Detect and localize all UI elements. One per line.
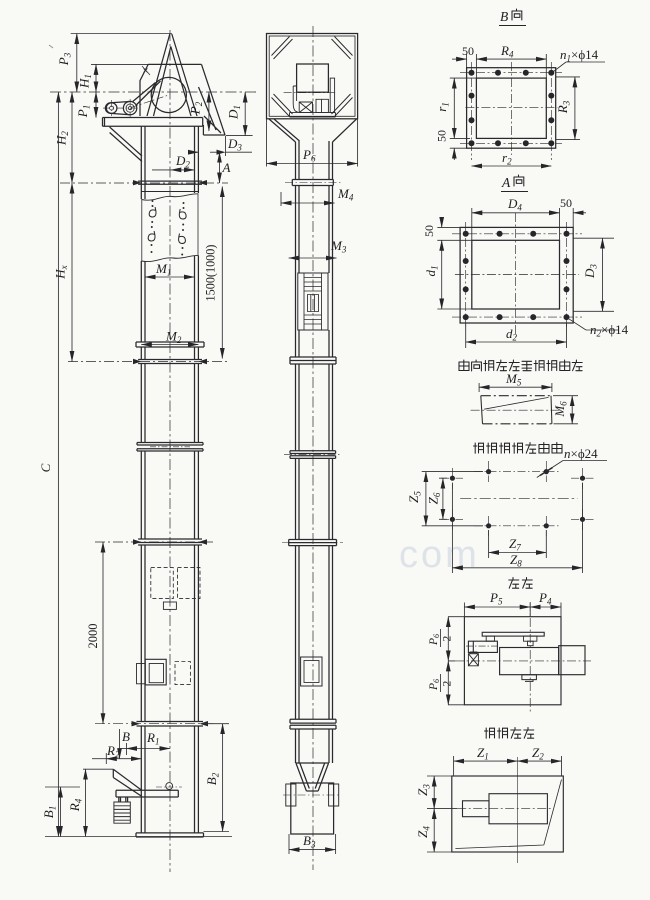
svg-text:com: com: [399, 534, 480, 576]
svg-text:A: A: [222, 160, 231, 175]
svg-text:n2×ϕ14: n2×ϕ14: [590, 322, 629, 339]
svg-text:2000: 2000: [86, 624, 100, 649]
svg-text:50: 50: [560, 196, 572, 210]
svg-text:1500(1000): 1500(1000): [204, 245, 218, 302]
svg-text:C: C: [38, 463, 53, 472]
svg-text:50: 50: [462, 44, 474, 58]
svg-text:B: B: [122, 729, 130, 744]
svg-text:2: 2: [442, 636, 454, 642]
svg-text:50: 50: [435, 130, 449, 142]
svg-text:50: 50: [422, 225, 436, 237]
svg-text:A: A: [501, 175, 511, 190]
svg-text:B: B: [500, 9, 508, 24]
svg-text:n1×ϕ14: n1×ϕ14: [560, 47, 599, 64]
svg-text:2: 2: [442, 681, 454, 687]
svg-text:n×ϕ24: n×ϕ24: [564, 446, 598, 461]
